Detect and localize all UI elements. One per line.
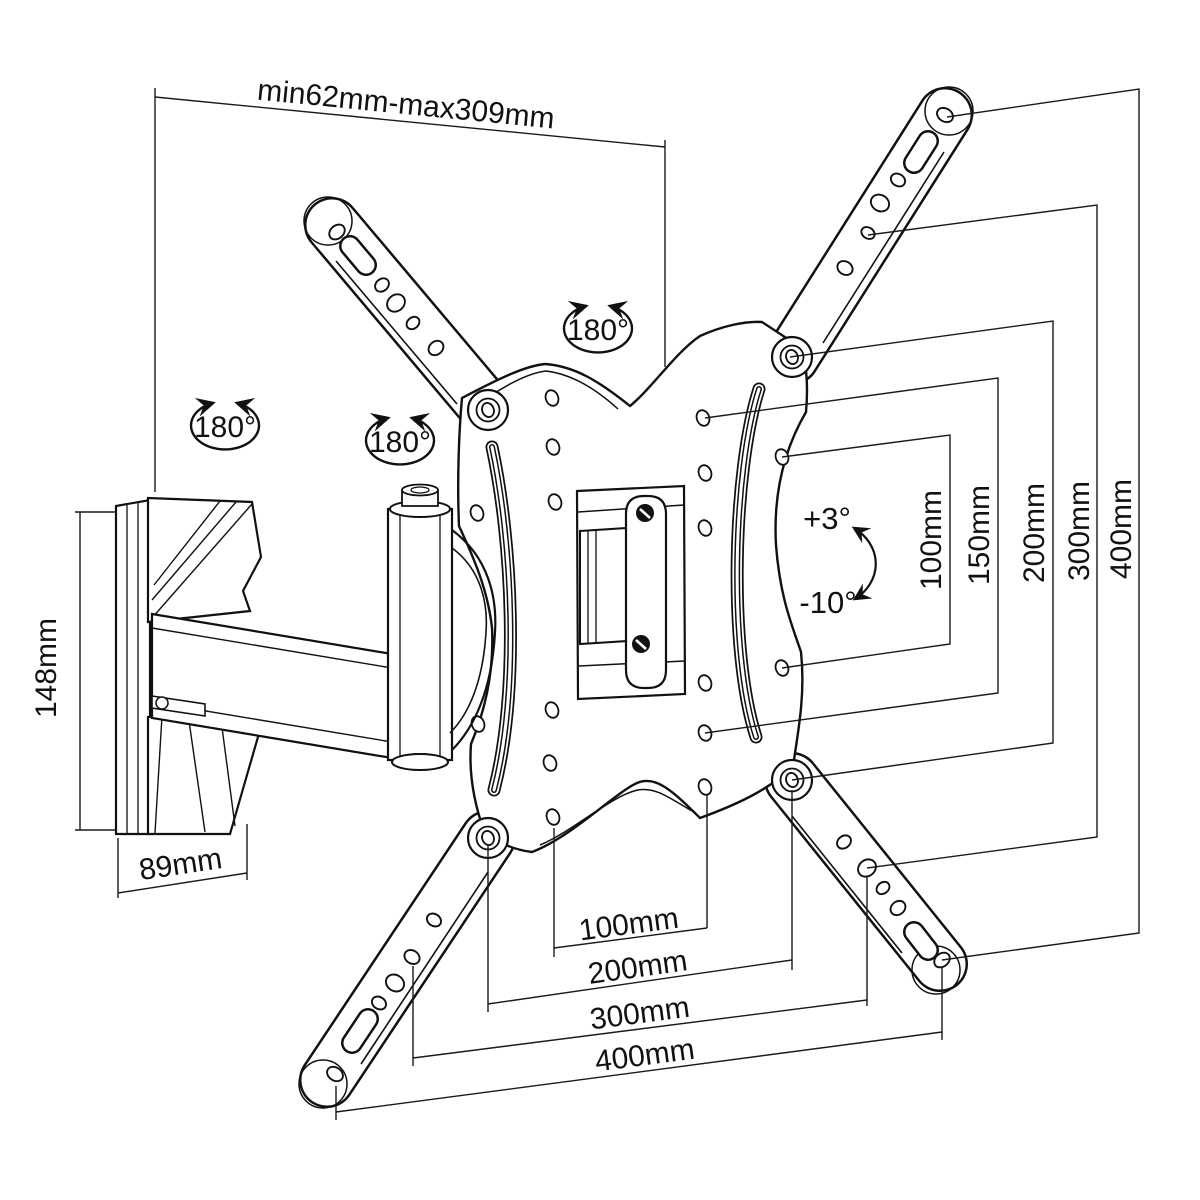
dim-148-label: 148mm (30, 618, 63, 718)
vesa-arm-top-right (792, 87, 973, 357)
tilt-up-label: +3° (803, 501, 851, 536)
pivot-top-left (468, 390, 508, 430)
vesa-arm-top-left (304, 197, 488, 410)
tilt-down-label: -10° (799, 585, 856, 620)
bracket-strap (626, 496, 666, 688)
dim-right-200-label: 200mm (1018, 483, 1051, 583)
dim-top-span-label: min62mm-max309mm (256, 74, 556, 136)
rotation-label-3: 180° (567, 314, 629, 347)
dim-bottom-100-label: 100mm (577, 902, 680, 948)
dim-right-150-label: 150mm (963, 485, 996, 585)
dim-right-100-label: 100mm (915, 490, 948, 590)
dim-89-label: 89mm (137, 842, 224, 887)
arm-slot (914, 141, 928, 163)
bracket-inner-block (580, 528, 627, 644)
dim-right-300-label: 300mm (1063, 481, 1096, 581)
tilt-bracket (577, 486, 685, 699)
dim-bottom-300-label: 300mm (588, 991, 691, 1037)
arm-post (388, 509, 452, 760)
wall-arm-assembly (116, 485, 495, 835)
post-bolt-top (402, 485, 438, 496)
mount-diagram-page: min62mm-max309mm 148mm 89mm 100mm 200mm … (0, 0, 1200, 1200)
vesa-arm-bottom-left (299, 838, 488, 1108)
dim-148-lines (75, 512, 116, 830)
rotation-label-2: 180° (369, 426, 431, 459)
vesa-arm-bottom-right (792, 780, 960, 994)
mount-diagram: min62mm-max309mm 148mm 89mm 100mm 200mm … (0, 0, 1200, 1200)
vesa-plate (458, 322, 807, 852)
tilt-arrow (854, 528, 876, 599)
dim-bottom-400-label: 400mm (593, 1033, 696, 1079)
arm-slot (914, 932, 928, 950)
rotation-label-1: 180° (194, 411, 256, 444)
dim-bottom-200-label: 200mm (586, 944, 690, 991)
dim-right-400-label: 400mm (1105, 479, 1138, 579)
post-base (392, 754, 448, 770)
clamp-screw (156, 697, 168, 709)
wall-plate-strip (116, 500, 150, 834)
